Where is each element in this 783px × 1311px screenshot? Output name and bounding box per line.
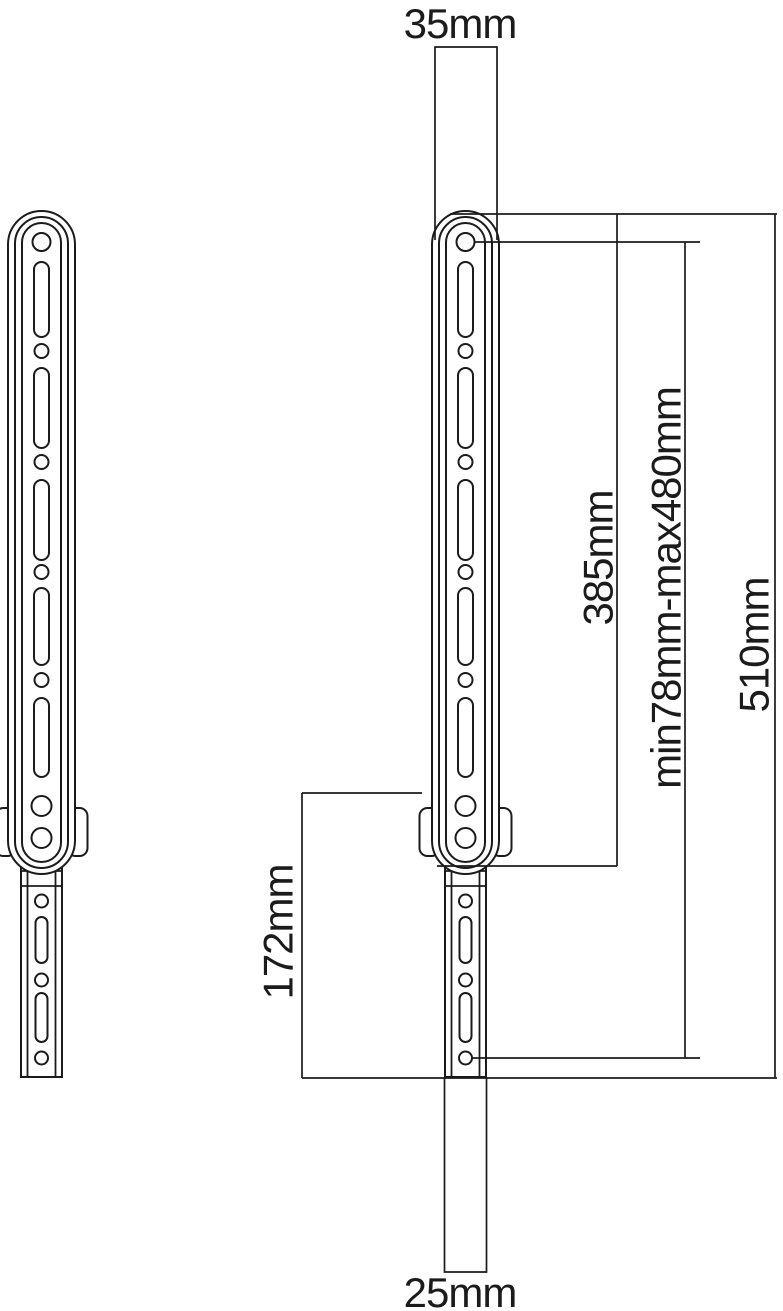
- dim-bottom-width: 25mm: [404, 1078, 517, 1311]
- side-view-bracket: [0, 211, 88, 1077]
- dim-overall-length-label: 510mm: [731, 577, 778, 712]
- technical-drawing-canvas: 35mm 385mm min78mm-max480mm 510mm 172mm …: [0, 0, 783, 1311]
- dim-extension-length: 172mm: [255, 793, 423, 1078]
- bracket-outline: [0, 211, 88, 1077]
- dim-adjustment-range: min78mm-max480mm: [472, 242, 700, 1058]
- dim-bottom-width-label: 25mm: [404, 1269, 517, 1311]
- dim-top-width-label: 35mm: [404, 0, 517, 47]
- dim-overall-length: 510mm: [302, 214, 778, 1078]
- bracket-outline: [420, 211, 512, 1077]
- dim-adjustment-range-label: min78mm-max480mm: [643, 387, 690, 789]
- front-view-bracket: [420, 211, 512, 1077]
- dim-arm-length-label: 385mm: [575, 490, 622, 625]
- bracket-dimension-drawing: 35mm 385mm min78mm-max480mm 510mm 172mm …: [0, 0, 783, 1311]
- dim-extension-length-label: 172mm: [255, 864, 302, 999]
- dim-top-width: 35mm: [404, 0, 517, 240]
